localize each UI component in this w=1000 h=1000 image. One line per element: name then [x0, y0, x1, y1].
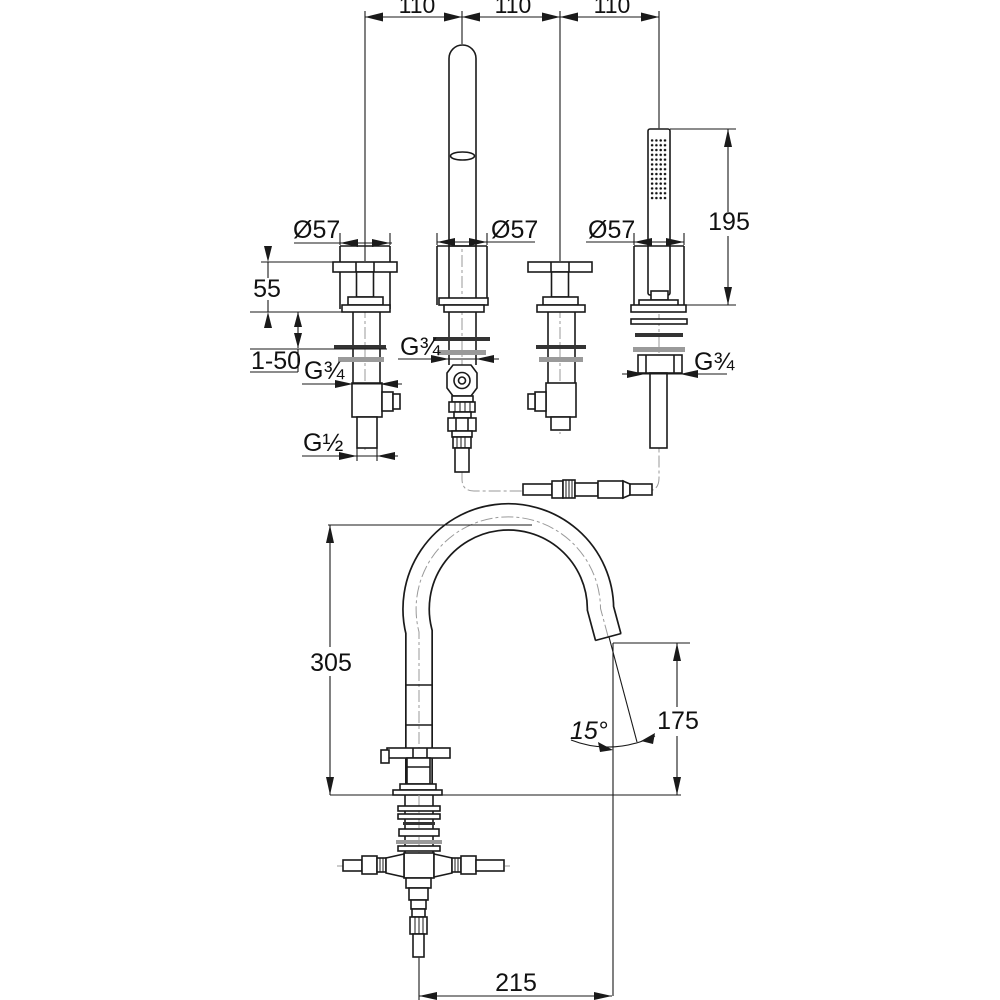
dim-spout-thread-label: G¾ [400, 333, 441, 361]
dim-spacing-right: 110 [594, 0, 631, 18]
dim-spout-reach-label: 215 [495, 969, 537, 997]
faucet-dimension-drawing: 110 110 110 Ø57 [0, 0, 1000, 1000]
hose-connector [523, 480, 652, 498]
left-valve-front [333, 246, 400, 448]
handle-side [381, 748, 450, 795]
dim-valve-thread-label: G¾ [304, 357, 345, 385]
valve-body-side [337, 795, 510, 962]
right-valve-front [528, 262, 592, 430]
dim-spout-angle: 15° [570, 637, 655, 996]
dim-valve-outlet-thread-label: G½ [303, 429, 343, 457]
dim-outlet-height-label: 175 [657, 707, 699, 735]
dim-spout-reach: 215 [419, 958, 612, 1000]
dim-spout-diameter-label: Ø57 [491, 216, 538, 244]
dim-shower-length: 195 [670, 129, 750, 305]
dim-spout-height-label: 305 [310, 649, 352, 677]
dim-shower-diameter-label: Ø57 [588, 216, 635, 244]
dim-handle-height: 55 [250, 246, 342, 328]
dim-shower-length-label: 195 [708, 208, 750, 236]
hand-shower-front [631, 129, 687, 448]
spout-side-view [330, 517, 681, 962]
gooseneck-fill [416, 517, 608, 786]
dim-deck-thickness-label: 1-50 [251, 347, 301, 375]
dim-spacing-center: 110 [495, 0, 532, 18]
dim-spacing-left: 110 [399, 0, 436, 18]
dim-outlet-height: 175 [613, 643, 699, 795]
dim-handle-height-label: 55 [253, 275, 281, 303]
dim-shower-thread-label: G¾ [694, 348, 735, 376]
dim-spout-angle-label: 15° [570, 717, 608, 745]
shower-spray-face [651, 137, 668, 201]
dim-valve-diameter: Ø57 [293, 216, 392, 247]
dim-valve-diameter-label: Ø57 [293, 216, 340, 244]
technical-drawing-page: 110 110 110 Ø57 [0, 0, 1000, 1000]
dim-valve-outlet-thread: G½ [302, 429, 398, 461]
centerlines-front-view [365, 45, 659, 474]
